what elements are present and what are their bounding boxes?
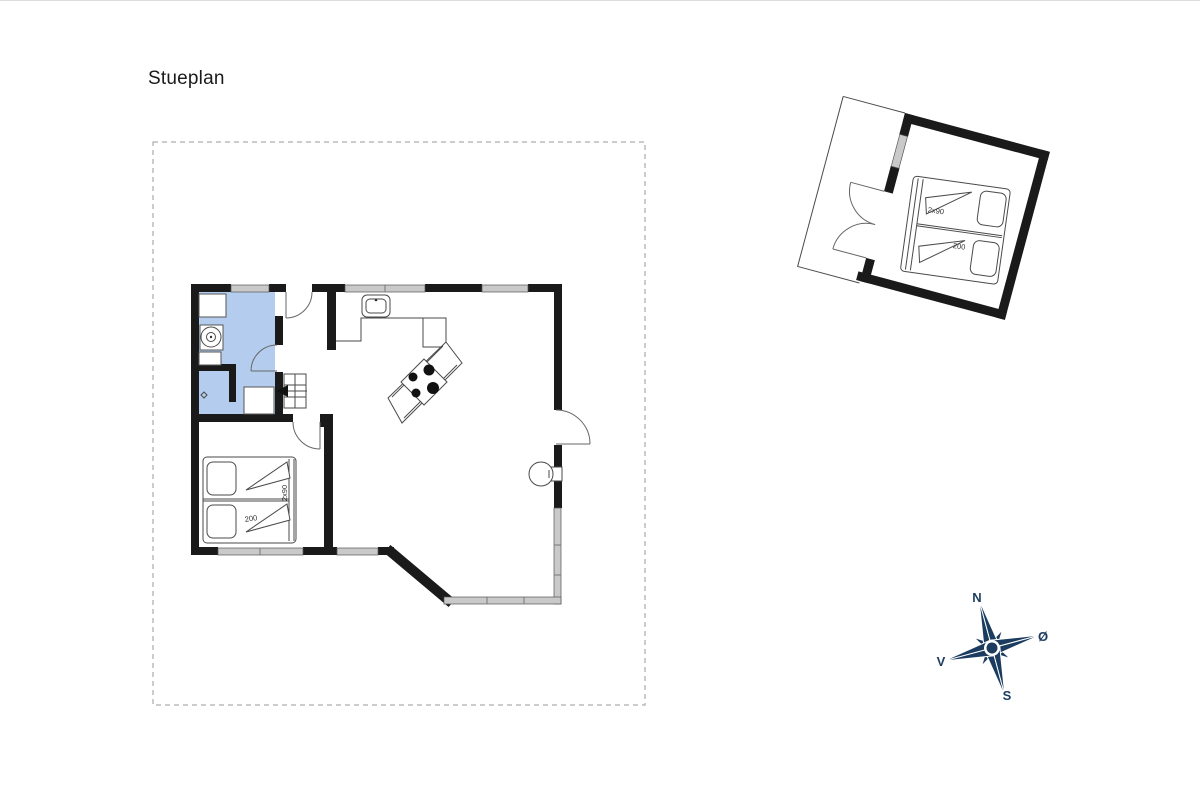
compass-label-north: N bbox=[972, 590, 981, 605]
bed-length-label: 200 bbox=[244, 513, 258, 524]
diagonal-wall bbox=[391, 552, 448, 600]
annexe-window bbox=[891, 134, 907, 168]
bed-length-label: 200 bbox=[952, 241, 966, 252]
kitchen bbox=[336, 295, 462, 423]
bedroom-door-arc bbox=[293, 422, 320, 449]
annexe-double-doors bbox=[833, 182, 884, 258]
faucet-icon bbox=[375, 299, 378, 302]
main-house: 2x90 200 bbox=[191, 284, 590, 604]
pillow bbox=[976, 190, 1006, 227]
compass-label-east: Ø bbox=[1038, 629, 1048, 644]
cabinet-icon bbox=[199, 352, 221, 365]
annexe-bed-icon: 2x90 200 bbox=[900, 176, 1010, 285]
compass-rose-icon: N Ø S V bbox=[931, 587, 1053, 709]
door-arc-icon bbox=[842, 182, 884, 224]
double-bed-icon: 2x90 200 bbox=[203, 457, 296, 543]
annexe: 2x90 200 bbox=[798, 96, 1050, 321]
kitchen-counter bbox=[336, 318, 446, 347]
compass-label-west: V bbox=[937, 654, 946, 669]
bed-width-label: 2x90 bbox=[280, 485, 289, 501]
pillow bbox=[207, 505, 236, 538]
floorplan-canvas: 2x90 200 bbox=[0, 0, 1200, 800]
toilet-icon bbox=[244, 387, 274, 414]
pillow bbox=[207, 462, 236, 495]
entrance-door-arc bbox=[286, 292, 312, 318]
compass-label-south: S bbox=[1003, 688, 1012, 703]
floorplan-page: Stueplan bbox=[0, 0, 1200, 800]
pillow bbox=[970, 240, 1000, 277]
terrace-door-arc bbox=[556, 410, 590, 444]
washer-icon bbox=[199, 294, 226, 317]
plot-boundary bbox=[153, 142, 645, 705]
